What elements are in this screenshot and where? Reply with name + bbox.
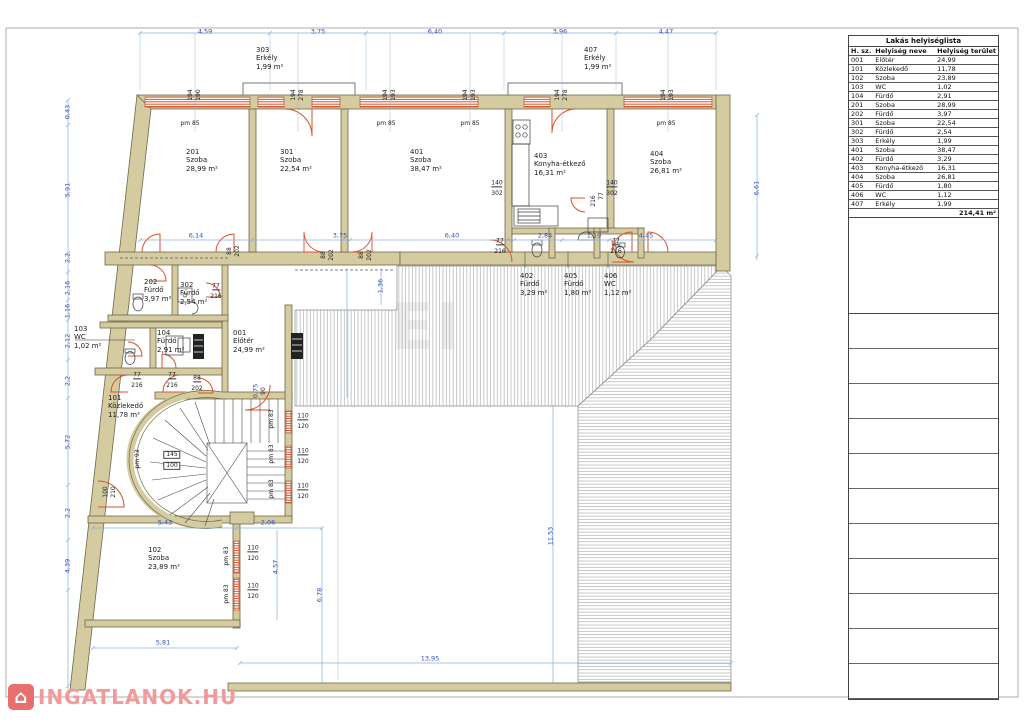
- room-number: 402: [849, 155, 873, 164]
- room-name: Szoba: [873, 101, 935, 110]
- room-list-panel: Lakás helyiséglista H. sz. Helyiség neve…: [848, 35, 999, 700]
- room-area: 24,99: [935, 56, 998, 65]
- room-name: Konyha-étkező: [873, 164, 935, 173]
- title-block-empty-row: [849, 664, 998, 699]
- room-name: Szoba: [873, 173, 935, 182]
- room-list-row: 405Fürdő1,80: [849, 182, 998, 191]
- col-header-name: Helyiség neve: [873, 47, 935, 56]
- title-block-empty-row: [849, 454, 998, 489]
- total-area: 214,41 m²: [849, 209, 998, 218]
- room-list-row: 401Szoba38,47: [849, 146, 998, 155]
- room-list-row: 001Előtér24,99: [849, 56, 998, 65]
- room-list-row: 201Szoba28,99: [849, 101, 998, 110]
- room-name: Fürdő: [873, 182, 935, 191]
- room-area: 28,99: [935, 101, 998, 110]
- room-number: 403: [849, 164, 873, 173]
- room-area: 23,89: [935, 74, 998, 83]
- ingatlanok-logo: ⌂ INGATLANOK.HU: [8, 684, 237, 710]
- room-name: Fürdő: [873, 155, 935, 164]
- room-area: 38,47: [935, 146, 998, 155]
- room-number: 401: [849, 146, 873, 155]
- room-area: 3,97: [935, 110, 998, 119]
- room-list-row: 404Szoba26,81: [849, 173, 998, 182]
- room-area: 2,91: [935, 92, 998, 101]
- logo-text: INGATLANOK.HU: [38, 685, 237, 709]
- room-list-row: 104Fürdő2,91: [849, 92, 998, 101]
- room-number: 101: [849, 65, 873, 74]
- title-block-empty-row: [849, 314, 998, 349]
- room-number: 201: [849, 101, 873, 110]
- room-area: 16,31: [935, 164, 998, 173]
- room-name: WC: [873, 191, 935, 200]
- title-block-empty-cell: [849, 218, 998, 314]
- room-name: Szoba: [873, 119, 935, 128]
- room-name: Előtér: [873, 56, 935, 65]
- room-number: 103: [849, 83, 873, 92]
- room-number: 301: [849, 119, 873, 128]
- col-header-area: Helyiség terület: [935, 47, 998, 56]
- room-number: 404: [849, 173, 873, 182]
- title-block-empty-row: [849, 419, 998, 454]
- room-area: 22,54: [935, 119, 998, 128]
- title-block-empty-row: [849, 629, 998, 664]
- room-name: Erkély: [873, 200, 935, 209]
- room-number: 302: [849, 128, 873, 137]
- room-number: 303: [849, 137, 873, 146]
- room-list-row: 402Fürdő3,29: [849, 155, 998, 164]
- room-number: 001: [849, 56, 873, 65]
- room-name: Fürdő: [873, 110, 935, 119]
- room-area: 1,02: [935, 83, 998, 92]
- room-list-row: 303Erkély1,99: [849, 137, 998, 146]
- room-list-title: Lakás helyiséglista: [849, 36, 998, 47]
- room-area: 26,81: [935, 173, 998, 182]
- title-block-empty-row: [849, 559, 998, 594]
- room-area: 1,99: [935, 200, 998, 209]
- room-number: 104: [849, 92, 873, 101]
- room-name: Fürdő: [873, 92, 935, 101]
- room-number: 202: [849, 110, 873, 119]
- room-area: 3,29: [935, 155, 998, 164]
- room-list-row: 101Közlekedő11,78: [849, 65, 998, 74]
- room-area: 1,99: [935, 137, 998, 146]
- room-area: 1,12: [935, 191, 998, 200]
- room-number: 102: [849, 74, 873, 83]
- room-list-row: 403Konyha-étkező16,31: [849, 164, 998, 173]
- room-name: WC: [873, 83, 935, 92]
- room-list-row: 301Szoba22,54: [849, 119, 998, 128]
- room-name: Szoba: [873, 74, 935, 83]
- room-list-table: H. sz. Helyiség neve Helyiség terület 00…: [849, 47, 998, 218]
- room-number: 407: [849, 200, 873, 209]
- room-list-row: 202Fürdő3,97: [849, 110, 998, 119]
- house-icon: ⌂: [8, 684, 34, 710]
- title-block-empty-row: [849, 489, 998, 524]
- room-number: 405: [849, 182, 873, 191]
- room-number: 406: [849, 191, 873, 200]
- room-list-row: 406WC1,12: [849, 191, 998, 200]
- title-block-empty-row: [849, 594, 998, 629]
- room-list-row: 103WC1,02: [849, 83, 998, 92]
- room-list-row: 407Erkély1,99: [849, 200, 998, 209]
- title-block-empty-row: [849, 384, 998, 419]
- floor-plan-sheet: EI 303 Erkély 1,99 m²407 Erkély 1,99 m²2…: [0, 0, 1024, 726]
- room-area: 2,54: [935, 128, 998, 137]
- room-name: Erkély: [873, 137, 935, 146]
- title-block-empty-row: [849, 349, 998, 384]
- title-block-empty-row: [849, 524, 998, 559]
- room-area: 1,80: [935, 182, 998, 191]
- room-name: Fürdő: [873, 128, 935, 137]
- col-header-number: H. sz.: [849, 47, 873, 56]
- room-list-row: 302Fürdő2,54: [849, 128, 998, 137]
- room-list-row: 102Szoba23,89: [849, 74, 998, 83]
- room-area: 11,78: [935, 65, 998, 74]
- room-name: Szoba: [873, 146, 935, 155]
- room-name: Közlekedő: [873, 65, 935, 74]
